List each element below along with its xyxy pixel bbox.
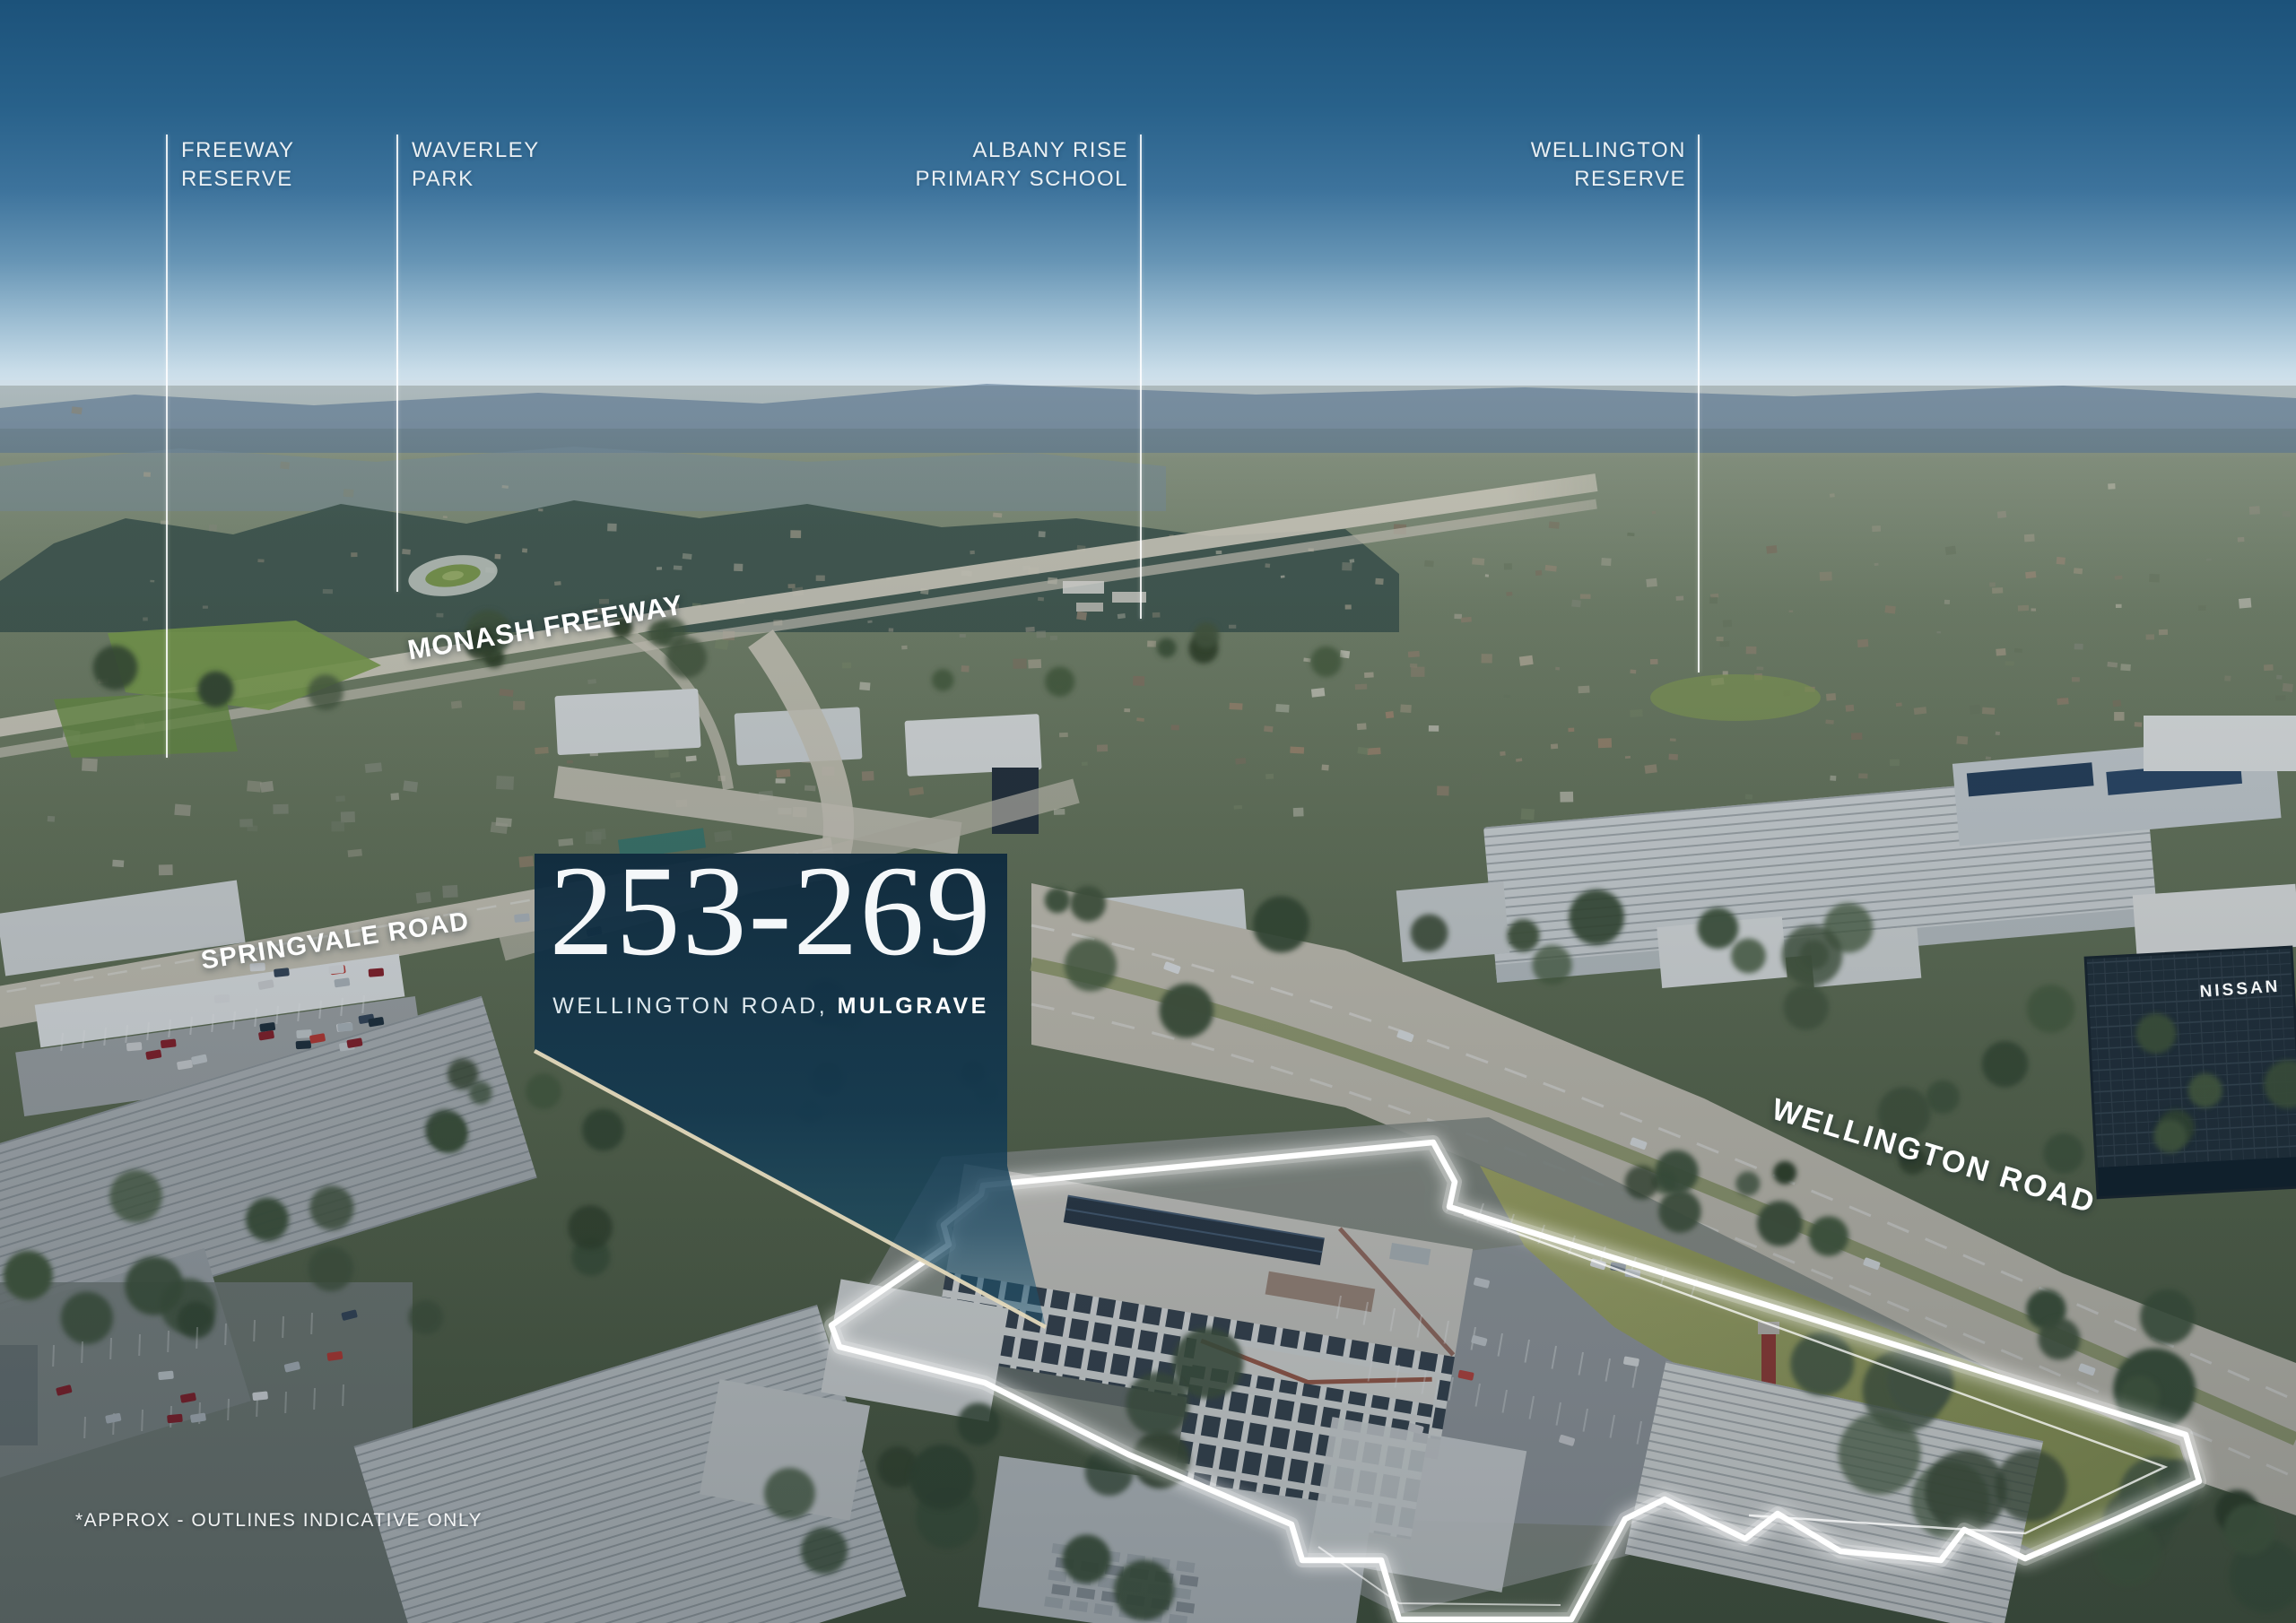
aerial-marketing-image: FREEWAY RESERVE WAVERLEY PARK ALBANY RIS… [0,0,2296,1623]
aerial-photo-composite [0,0,2296,1623]
address-number: 253-269 [535,845,1007,979]
address-street: WELLINGTON ROAD, MULGRAVE [535,994,1007,1020]
label-line2: RESERVE [1531,165,1686,194]
label-freeway-reserve: FREEWAY RESERVE [181,136,295,194]
leader-line-albany-rise [1140,135,1142,619]
label-line2: RESERVE [181,165,295,194]
label-waverley-park: WAVERLEY PARK [412,136,540,194]
label-line1: WELLINGTON [1531,136,1686,165]
leader-line-wellington-reserve [1698,135,1700,673]
label-line1: WAVERLEY [412,136,540,165]
disclaimer-text: *APPROX - OUTLINES INDICATIVE ONLY [75,1510,483,1532]
address-callout: 253-269 WELLINGTON ROAD, MULGRAVE [535,845,1007,1020]
label-albany-rise-school: ALBANY RISE PRIMARY SCHOOL [915,136,1128,194]
label-line2: PARK [412,165,540,194]
label-line2: PRIMARY SCHOOL [915,165,1128,194]
label-line1: ALBANY RISE [915,136,1128,165]
label-wellington-reserve: WELLINGTON RESERVE [1531,136,1686,194]
leader-line-freeway-reserve [166,135,168,758]
street-name: WELLINGTON ROAD, [552,994,828,1019]
label-line1: FREEWAY [181,136,295,165]
sky [0,0,2296,421]
suburb-name: MULGRAVE [838,994,989,1019]
leader-line-waverley-park [396,135,398,592]
